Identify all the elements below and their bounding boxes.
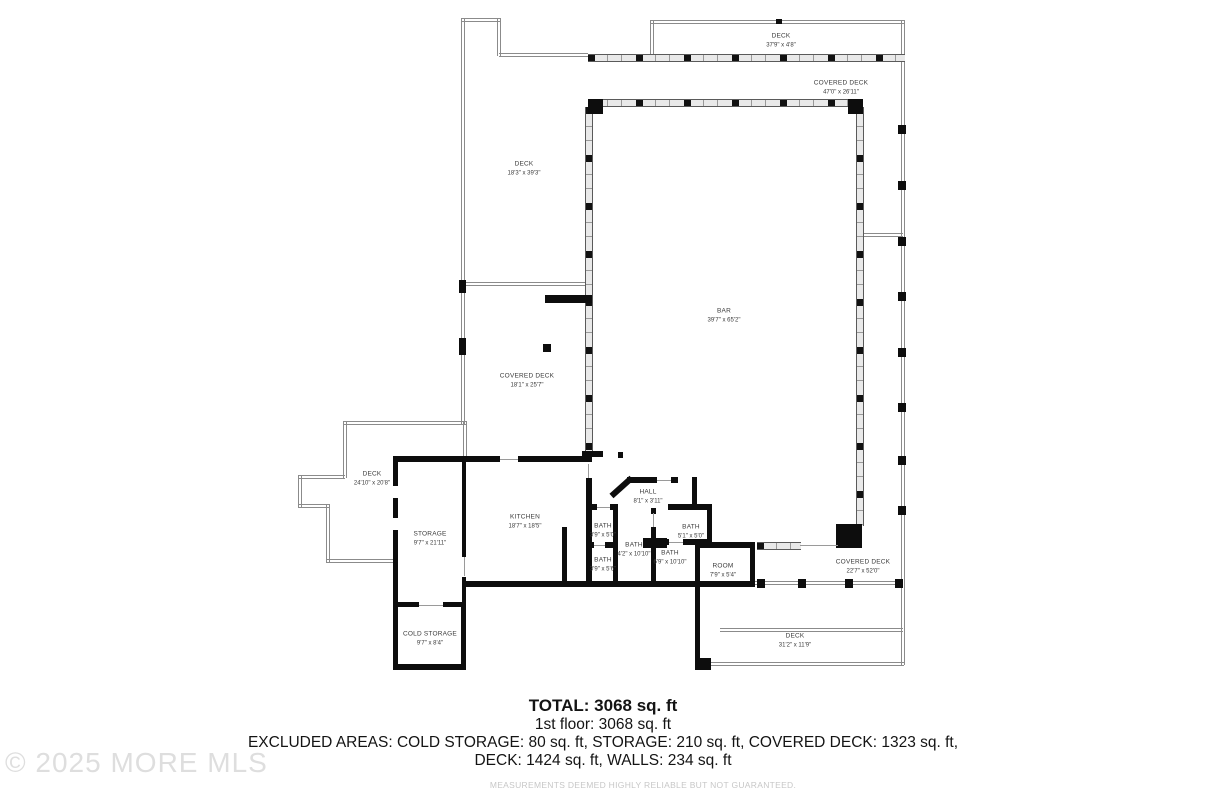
- room-name: DECK: [508, 160, 541, 170]
- wall: [393, 498, 398, 518]
- door-line: [653, 513, 654, 527]
- wall-post: [543, 344, 551, 352]
- room-name: BATH: [618, 541, 651, 551]
- room-name: DECK: [354, 470, 390, 480]
- wall-post: [618, 452, 623, 458]
- wall: [393, 456, 500, 462]
- room-name: BATH: [590, 556, 616, 566]
- window-wall: [588, 99, 863, 107]
- railing-post: [898, 506, 906, 515]
- wall: [668, 504, 712, 510]
- total-area: TOTAL: 3068 sq. ft: [0, 696, 1206, 716]
- wall-corner: [848, 99, 863, 114]
- railing-post: [898, 292, 906, 301]
- deck-railing: [499, 53, 588, 57]
- room-name: BATH: [590, 522, 616, 532]
- wall: [695, 542, 755, 548]
- room-dims: 18'7" x 18'5": [509, 522, 542, 531]
- wall: [695, 542, 700, 670]
- wall: [588, 504, 597, 510]
- deck-railing: [326, 559, 395, 563]
- wall-corner: [695, 658, 711, 670]
- room-name: KITCHEN: [509, 513, 542, 523]
- room-name: STORAGE: [413, 530, 446, 540]
- window-wall: [585, 107, 593, 457]
- room-name: DECK: [779, 632, 811, 642]
- door-line: [657, 480, 671, 481]
- room-dims: 7'9" x 5'4": [710, 571, 736, 580]
- wall: [582, 451, 603, 457]
- room-dims: 18'3" x 39'3": [508, 169, 541, 178]
- wall: [462, 462, 466, 557]
- window-wall: [588, 54, 905, 62]
- deck-railing: [650, 20, 654, 57]
- deck-railing: [298, 475, 302, 507]
- room-label-deck-top: DECK 37'9" x 4'8": [766, 32, 796, 51]
- deck-railing: [298, 475, 345, 479]
- room-name: DECK: [766, 32, 796, 42]
- door-line: [800, 545, 838, 546]
- room-dims: 5'1" x 5'0": [678, 532, 704, 541]
- room-label-hall: HALL 8'1" x 3'11": [633, 488, 662, 507]
- room-name: BATH: [678, 523, 704, 533]
- room-dims: 18'1" x 25'7": [500, 381, 554, 390]
- deck-railing: [698, 662, 904, 666]
- room-label-deck-bottom: DECK 31'2" x 11'9": [779, 632, 811, 651]
- wall: [393, 664, 466, 670]
- watermark: © 2025 MORE MLS: [5, 747, 268, 779]
- room-label-bar: BAR 39'7" x 65'2": [708, 307, 741, 326]
- room-dims: 24'10" x 20'8": [354, 479, 390, 488]
- wall-post: [776, 19, 782, 24]
- room-label-bath-1: BATH 3'9" x 5'0": [590, 522, 616, 541]
- room-label-covered-deck-left: COVERED DECK 18'1" x 25'7": [500, 372, 554, 391]
- room-label-bath-4: BATH 3'9" x 5'6": [590, 556, 616, 575]
- railing-post: [898, 237, 906, 246]
- deck-railing: [326, 504, 330, 562]
- room-dims: 4'2" x 10'10": [618, 550, 651, 559]
- wall: [627, 477, 657, 483]
- room-label-storage: STORAGE 9'7" x 21'11": [413, 530, 446, 549]
- room-name: BAR: [708, 307, 741, 317]
- room-name: ROOM: [710, 562, 736, 572]
- railing-post: [895, 579, 903, 588]
- floor-plan-page: DECK 37'9" x 4'8" COVERED DECK 47'0" x 2…: [0, 0, 1206, 804]
- wall: [518, 456, 592, 462]
- disclaimer: MEASUREMENTS DEEMED HIGHLY RELIABLE BUT …: [40, 780, 1206, 790]
- deck-railing: [343, 421, 347, 478]
- door-line: [419, 605, 443, 606]
- first-floor-area: 1st floor: 3068 sq. ft: [0, 716, 1206, 734]
- deck-railing: [464, 282, 588, 286]
- deck-railing: [461, 286, 465, 424]
- room-dims: 9'7" x 8'4": [403, 639, 457, 648]
- wall: [605, 542, 618, 548]
- room-dims: 9'7" x 21'11": [413, 539, 446, 548]
- door-line: [464, 557, 465, 576]
- window-wall: [856, 107, 864, 526]
- deck-railing: [497, 18, 501, 56]
- railing-post: [898, 348, 906, 357]
- deck-railing: [343, 421, 466, 425]
- door-line: [597, 507, 610, 508]
- deck-railing: [461, 18, 465, 286]
- room-dims: 8'1" x 3'11": [633, 497, 662, 506]
- room-dims: 37'9" x 4'8": [766, 41, 796, 50]
- room-name: COLD STORAGE: [403, 630, 457, 640]
- wall: [671, 477, 678, 483]
- wall-post: [459, 280, 466, 293]
- room-label-room: ROOM 7'9" x 5'4": [710, 562, 736, 581]
- room-label-bath-2: BATH 5'1" x 5'0": [678, 523, 704, 542]
- wall: [393, 530, 398, 606]
- room-dims: 39'7" x 65'2": [708, 316, 741, 325]
- railing-post: [845, 579, 853, 588]
- deck-railing: [901, 20, 905, 665]
- wall: [461, 607, 466, 665]
- wall: [393, 607, 398, 665]
- wall: [462, 581, 753, 587]
- room-dims: 31'2" x 11'9": [779, 641, 811, 650]
- wall: [545, 295, 592, 303]
- wall: [393, 462, 398, 486]
- room-name: BATH: [654, 549, 687, 559]
- deck-railing: [861, 233, 903, 237]
- door-line: [594, 545, 605, 546]
- door-line: [500, 459, 518, 460]
- room-label-covered-deck-top: COVERED DECK 47'0" x 26'11": [814, 79, 868, 98]
- room-name: COVERED DECK: [814, 79, 868, 89]
- room-label-deck-mid: DECK 24'10" x 20'8": [354, 470, 390, 489]
- wall: [750, 542, 755, 587]
- railing-post: [898, 456, 906, 465]
- room-dims: 22'7" x 52'0": [836, 567, 890, 576]
- room-label-cold-storage: COLD STORAGE 9'7" x 8'4": [403, 630, 457, 649]
- deck-railing: [461, 18, 501, 22]
- room-dims: 3'9" x 5'0": [590, 531, 616, 540]
- room-name: HALL: [633, 488, 662, 498]
- door-line: [588, 464, 589, 478]
- railing-post: [898, 403, 906, 412]
- wall-post: [459, 338, 466, 355]
- wall-corner: [588, 99, 603, 114]
- room-dims: 47'0" x 26'11": [814, 88, 868, 97]
- room-name: COVERED DECK: [500, 372, 554, 382]
- room-label-covered-deck-right: COVERED DECK 22'7" x 52'0": [836, 558, 890, 577]
- door-line: [669, 542, 683, 543]
- room-dims: 6'9" x 10'10": [654, 558, 687, 567]
- railing-post: [898, 181, 906, 190]
- wall: [562, 527, 567, 581]
- room-dims: 3'9" x 5'6": [590, 565, 616, 574]
- room-label-bath-5: BATH 6'9" x 10'10": [654, 549, 687, 568]
- railing-post: [757, 579, 765, 588]
- railing-post: [798, 579, 806, 588]
- window-wall: [757, 542, 801, 550]
- deck-railing: [298, 504, 329, 508]
- room-label-deck-left: DECK 18'3" x 39'3": [508, 160, 541, 179]
- wall-corner: [836, 524, 862, 548]
- room-label-kitchen: KITCHEN 18'7" x 18'5": [509, 513, 542, 532]
- wall: [656, 539, 669, 545]
- room-label-bath-3: BATH 4'2" x 10'10": [618, 541, 651, 560]
- room-name: COVERED DECK: [836, 558, 890, 568]
- deck-railing: [720, 628, 903, 632]
- deck-railing: [463, 421, 467, 459]
- railing-post: [898, 125, 906, 134]
- deck-railing: [755, 581, 903, 585]
